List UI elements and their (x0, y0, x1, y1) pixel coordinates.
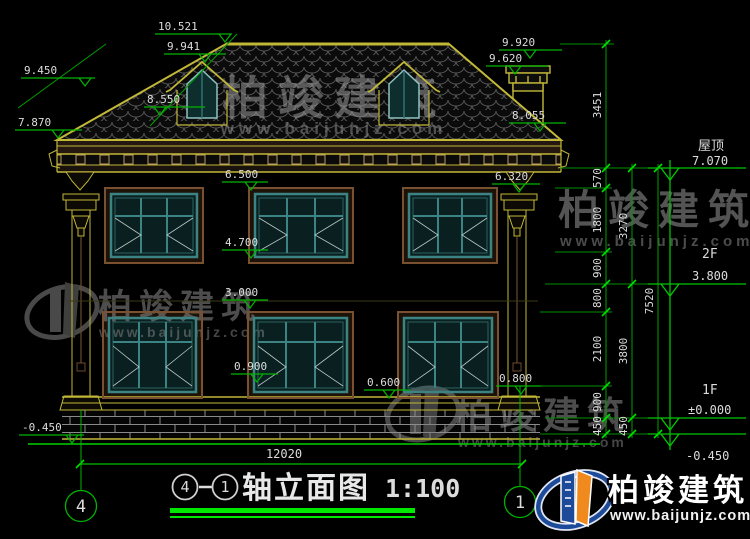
level-eave-left: 7.870 (18, 116, 51, 129)
dim-12020: 12020 (266, 447, 302, 461)
dim-1800: 1800 (591, 207, 604, 234)
level-plinth-mid: 0.600 (367, 376, 400, 389)
level-plinth-right: 0.800 (499, 372, 532, 385)
label-ground-elev: -0.450 (686, 449, 729, 463)
elevation-canvas: 柏竣建筑 www.baijunjz.com 柏竣建筑 www.baijunjz.… (0, 0, 750, 539)
cad-elevation-drawing: 柏竣建筑 www.baijunjz.com 柏竣建筑 www.baijunjz.… (0, 0, 750, 539)
label-1f: 1F (702, 383, 718, 398)
level-dormer-eave: 9.450 (24, 64, 57, 77)
level-2f-window-top: 6.500 (225, 168, 258, 181)
label-2f: 2F (702, 247, 718, 262)
cornice-fill (57, 140, 561, 172)
dim-450a: 450 (591, 416, 604, 436)
watermark-url-text: www.baijunjz.com (220, 119, 448, 138)
dim-450b: 450 (617, 416, 630, 436)
title-text: 轴立面图 (242, 471, 370, 505)
level-roof-chimney: 8.055 (512, 109, 545, 122)
label-roof-elev: 7.070 (692, 154, 728, 168)
dim-7520: 7520 (643, 288, 656, 315)
level-chimney-top: 9.920 (502, 36, 535, 49)
dim-900b: 900 (591, 392, 604, 412)
watermark-logo-building (50, 290, 61, 332)
title-underline-thin (170, 516, 415, 518)
dim-800: 800 (591, 288, 604, 308)
level-ground-left: -0.450 (22, 421, 62, 434)
title-circle-left-number: 4 (180, 478, 189, 496)
watermark-right: 柏竣建筑 www.baijunjz.com (558, 187, 750, 250)
label-1f-elev: ±0.000 (688, 403, 731, 417)
level-dormer-sill: 8.550 (147, 93, 180, 106)
dim-3451: 3451 (591, 92, 604, 119)
level-ridge: 10.521 (158, 20, 198, 33)
label-roof: 屋顶 (698, 138, 724, 153)
level-chimney-cap: 9.620 (489, 52, 522, 65)
level-1f-window-top: 3.000 (225, 286, 258, 299)
title-underline-thick (170, 508, 415, 513)
axis-number: 4 (76, 497, 86, 517)
watermark-logo-building (410, 394, 421, 434)
dim-900a: 900 (591, 258, 604, 278)
dim-3800: 3800 (617, 338, 630, 365)
brand-name: 柏竣建筑 (608, 473, 748, 508)
axis-number: 1 (515, 493, 525, 513)
level-1f-window-sill: 0.900 (234, 360, 267, 373)
watermark-url-text: www.baijunjz.com (98, 324, 268, 340)
title-scale: 1:100 (385, 474, 460, 503)
watermark-brand-text: 柏竣建筑 (558, 187, 750, 233)
label-2f-elev: 3.800 (692, 269, 728, 283)
dim-570: 570 (591, 168, 604, 188)
brand-url: www.baijunjz.com (609, 508, 750, 524)
title-circle-right-number: 1 (220, 478, 229, 496)
watermark-brand-text: 柏竣建筑 (455, 394, 631, 436)
watermark-url-text: www.baijunjz.com (559, 233, 750, 250)
level-2f-window-sill: 4.700 (225, 236, 258, 249)
level-dormer-peak: 9.941 (167, 40, 200, 53)
dim-3270: 3270 (617, 213, 630, 240)
dim-2100: 2100 (591, 336, 604, 363)
level-rainhead-right: 6.320 (495, 170, 528, 183)
